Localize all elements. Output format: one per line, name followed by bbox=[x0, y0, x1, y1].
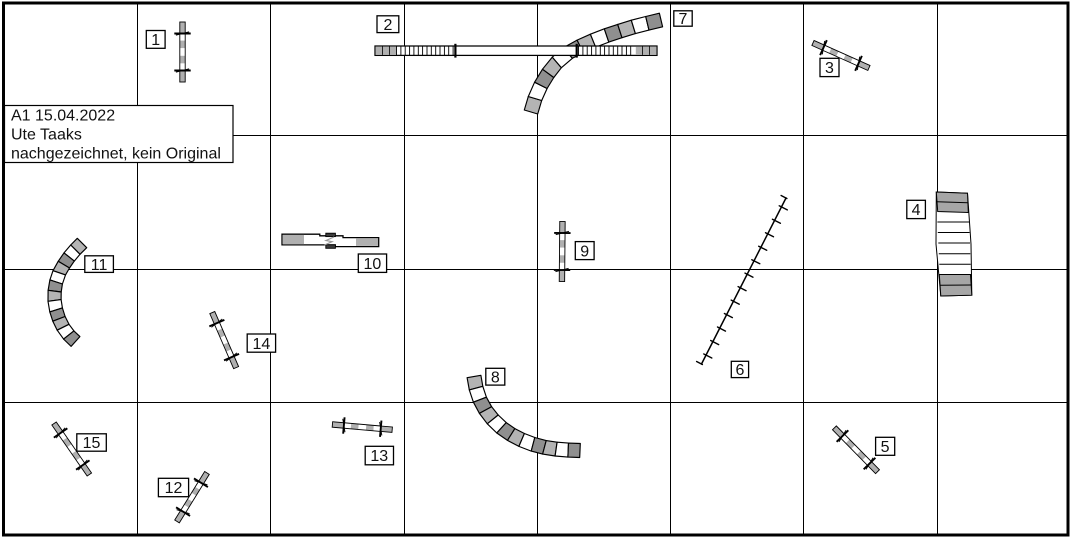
svg-text:10: 10 bbox=[364, 256, 382, 273]
svg-text:1: 1 bbox=[151, 32, 160, 49]
svg-text:5: 5 bbox=[881, 439, 890, 456]
svg-text:14: 14 bbox=[253, 336, 271, 353]
svg-text:12: 12 bbox=[165, 480, 183, 497]
svg-text:A1 15.04.2022: A1 15.04.2022 bbox=[11, 108, 115, 125]
svg-text:6: 6 bbox=[735, 362, 744, 379]
svg-text:8: 8 bbox=[491, 369, 500, 386]
svg-text:4: 4 bbox=[912, 202, 921, 219]
svg-text:9: 9 bbox=[580, 243, 589, 260]
svg-text:13: 13 bbox=[370, 448, 388, 465]
svg-text:nachgezeichnet, kein Original: nachgezeichnet, kein Original bbox=[11, 146, 221, 163]
svg-text:15: 15 bbox=[83, 435, 101, 452]
svg-text:2: 2 bbox=[383, 17, 392, 34]
svg-text:3: 3 bbox=[825, 60, 834, 77]
svg-text:11: 11 bbox=[91, 257, 108, 274]
svg-text:Ute Taaks: Ute Taaks bbox=[11, 127, 82, 144]
svg-text:7: 7 bbox=[679, 11, 688, 28]
